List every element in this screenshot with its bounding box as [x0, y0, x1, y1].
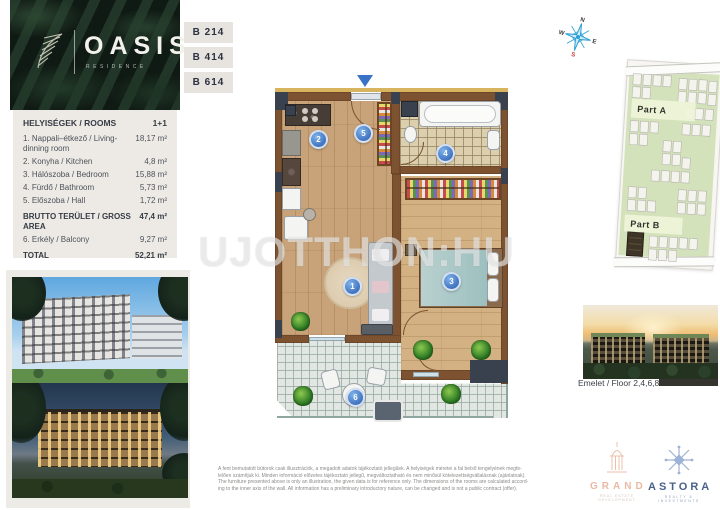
gross-value: 47,4 m²: [139, 212, 167, 232]
compass-s-label: S: [570, 52, 575, 58]
row-value: 18,17 m²: [135, 134, 167, 154]
table-row: 5. Előszoba / Hall 1,72 m²: [23, 196, 167, 206]
fridge: [282, 130, 301, 156]
wall-balcony-right: [345, 335, 401, 343]
astora-logo: ASTORA REALTY & INVESTMENTS: [648, 444, 710, 503]
row-label: 2. Konyha / Kitchen: [23, 157, 144, 167]
wall-corner-block: [391, 92, 400, 104]
grand-tower-icon: [590, 440, 644, 476]
logo-subtitle: RESIDENCE: [86, 64, 147, 70]
lawn: [12, 369, 188, 383]
rooms-table: HELYISÉGEK / ROOMS 1+1 1. Nappali–étkező…: [13, 110, 177, 258]
compass-n-label: N: [580, 17, 586, 24]
balcony-bench: [373, 400, 403, 422]
balcony-railing: [506, 384, 508, 418]
balcony-row: 6. Erkély / Balcony 9,27 m²: [23, 235, 167, 245]
total-value: 52,21 m²: [135, 251, 167, 261]
wall-corner-block: [501, 168, 508, 184]
tree-strip: [583, 363, 718, 379]
plant: [413, 340, 433, 360]
building-render: [132, 315, 182, 359]
plant: [471, 340, 491, 360]
floor-level-bar: [659, 379, 718, 386]
row-value: 15,88 m²: [135, 170, 167, 180]
balcony-glass-door: [309, 337, 345, 341]
compass-rose-icon: N E S W: [556, 14, 600, 58]
site-part-b-label: Part B: [624, 214, 683, 235]
tv-console: [361, 324, 393, 335]
bathtub: [419, 101, 501, 127]
disclaimer-line: A fent bemutatott bútorok csak illusztrá…: [218, 466, 548, 473]
bedroom-wardrobe: [405, 178, 501, 200]
balcony-value: 9,27 m²: [140, 235, 167, 245]
washing-machine: [401, 101, 418, 117]
unit-badge-b214[interactable]: B 214: [184, 22, 233, 43]
site-part-a-label: Part A: [631, 99, 696, 122]
balcony-label: 6. Erkély / Balcony: [23, 235, 140, 245]
disclaimer-line: The furniture presented above is only an…: [218, 479, 548, 486]
kitchen-sink: [285, 105, 296, 116]
floor-level-label: Emelet / Floor 2,4,6,8: [578, 378, 659, 388]
row-value: 4,8 m²: [144, 157, 167, 167]
balcony-chair: [366, 366, 388, 386]
wall-bathroom-bottom: [400, 166, 501, 174]
unit-badge-b614[interactable]: B 614: [184, 72, 233, 93]
grand-name: GRAND: [590, 481, 644, 492]
row-value: 1,72 m²: [140, 196, 167, 206]
kitchen-cabinet-white: [282, 188, 301, 210]
brochure-page: OASIS RESIDENCE B 214 B 414 B 614 HELYIS…: [0, 0, 720, 510]
site-buildings: [616, 60, 720, 269]
dining-chair: [303, 208, 316, 221]
toilet: [404, 126, 417, 143]
row-value: 5,73 m²: [140, 183, 167, 193]
logo-divider: [74, 30, 75, 74]
table-row: 4. Fürdő / Bathroom 5,73 m²: [23, 183, 167, 193]
wall-corner-block: [470, 360, 508, 383]
entrance-arrow-icon: [357, 75, 373, 87]
gross-label: BRUTTO TERÜLET / GROSS AREA: [23, 212, 139, 232]
disclaimer-line: lelően számítjuk ki. Minden információ e…: [218, 473, 548, 480]
grand-logo: GRAND REAL ESTATE DEVELOPMENT: [590, 440, 644, 502]
day-render-photo: [12, 277, 188, 383]
room-number-5: 5: [354, 124, 373, 143]
stove: [301, 107, 323, 123]
disclaimer-text: A fent bemutatott bútorok csak illusztrá…: [218, 466, 548, 492]
entrance-door: [351, 93, 381, 100]
building-render: [38, 409, 162, 467]
part-a-text: Part A: [637, 103, 667, 115]
wall-hall-divider: [391, 92, 400, 174]
pillow: [487, 278, 499, 302]
wall-top-right: [381, 92, 508, 101]
wall-left: [275, 92, 282, 343]
table-row: 1. Nappali–étkező / Living-dinning room …: [23, 134, 167, 154]
disclaimer-line: ing to the inner axis of the wall. All i…: [218, 486, 548, 493]
palm-leaf-icon: [32, 28, 70, 74]
wall-corner-block: [275, 172, 282, 192]
room-number-4: 4: [436, 144, 455, 163]
kitchen-cabinet-dark: [282, 158, 301, 186]
site-plan: Part A Part B: [615, 59, 720, 271]
room-number-2: 2: [309, 130, 328, 149]
row-label: 4. Fürdő / Bathroom: [23, 183, 140, 193]
wall-corner-block: [275, 320, 282, 338]
rooms-table-header: HELYISÉGEK / ROOMS 1+1: [23, 118, 167, 129]
room-number-6: 6: [346, 388, 365, 407]
bathroom-sink: [487, 130, 500, 150]
table-row: 2. Konyha / Kitchen 4,8 m²: [23, 157, 167, 167]
astora-name: ASTORA: [648, 481, 710, 493]
total-label: TOTAL: [23, 251, 135, 261]
lawn: [12, 479, 188, 498]
total-row: TOTAL 52,21 m²: [23, 251, 167, 261]
part-b-text: Part B: [630, 218, 660, 230]
oasis-logo-block: OASIS RESIDENCE: [10, 0, 180, 110]
compass-w-label: W: [558, 30, 565, 37]
table-row: 3. Hálószoba / Bedroom 15,88 m²: [23, 170, 167, 180]
dusk-render-photo: [12, 383, 188, 498]
astora-tagline: REALTY & INVESTMENTS: [648, 495, 710, 503]
aerial-render-photo: [583, 305, 718, 379]
row-label: 5. Előszoba / Hall: [23, 196, 140, 206]
bedroom-balcony-door: [413, 372, 439, 377]
row-label: 1. Nappali–étkező / Living-dinning room: [23, 134, 135, 154]
ujotthon-watermark: UJOTTHON:HU: [198, 228, 538, 276]
unit-badge-b414[interactable]: B 414: [184, 47, 233, 68]
astora-snowflake-icon: [648, 444, 710, 476]
rooms-header-label: HELYISÉGEK / ROOMS: [23, 118, 153, 129]
rooms-header-value: 1+1: [153, 118, 167, 129]
room-number-1: 1: [343, 277, 362, 296]
plant: [293, 386, 313, 406]
grand-tagline: REAL ESTATE DEVELOPMENT: [590, 494, 644, 502]
tree: [160, 383, 188, 441]
compass-e-label: E: [591, 39, 596, 46]
logo-title: OASIS: [84, 32, 192, 61]
plant: [291, 312, 310, 331]
gross-area-row: BRUTTO TERÜLET / GROSS AREA 47,4 m²: [23, 212, 167, 232]
plant: [441, 384, 461, 404]
row-label: 3. Hálószoba / Bedroom: [23, 170, 135, 180]
